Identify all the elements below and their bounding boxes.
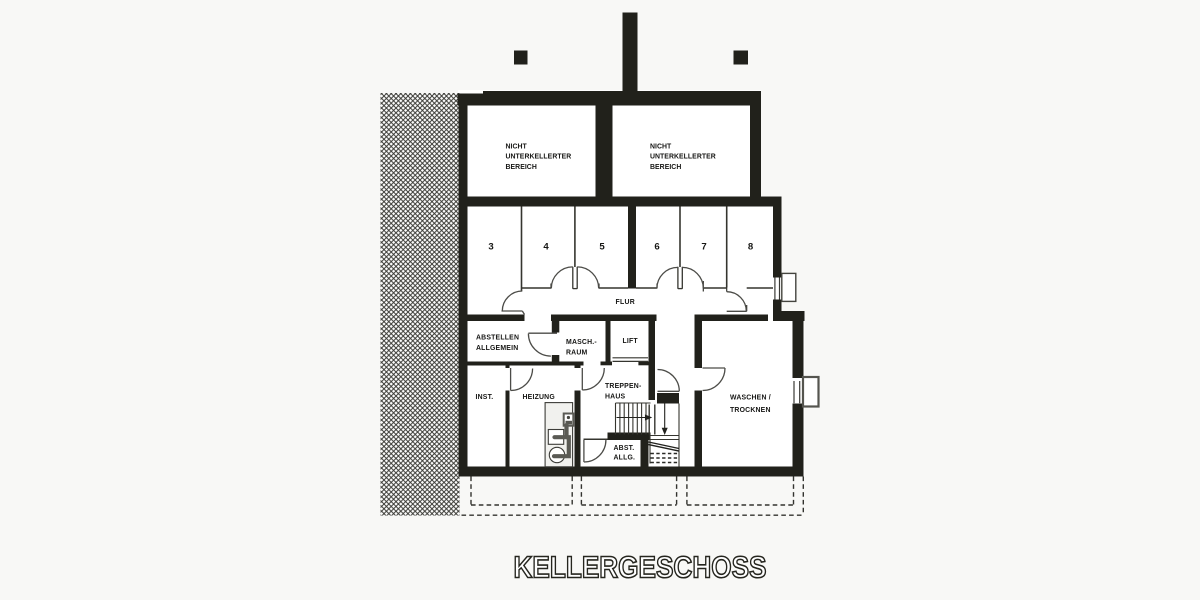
svg-text:LIFT: LIFT (623, 338, 639, 345)
svg-text:MASCH.-: MASCH.- (566, 339, 597, 346)
svg-text:7: 7 (701, 242, 706, 253)
svg-text:RAUM: RAUM (566, 349, 588, 356)
svg-text:NICHT: NICHT (650, 143, 672, 150)
svg-text:BEREICH: BEREICH (650, 164, 681, 171)
svg-text:ABSTELLEN: ABSTELLEN (476, 335, 519, 342)
svg-text:FLUR: FLUR (616, 299, 636, 306)
svg-text:BEREICH: BEREICH (506, 164, 537, 171)
svg-text:ALLGEMEIN: ALLGEMEIN (476, 345, 518, 352)
svg-text:8: 8 (748, 242, 754, 253)
svg-text:3: 3 (488, 242, 493, 253)
svg-text:HEIZUNG: HEIZUNG (523, 394, 555, 401)
svg-text:6: 6 (654, 242, 659, 253)
svg-text:5: 5 (599, 242, 605, 253)
svg-text:UNTERKELLERTER: UNTERKELLERTER (650, 154, 716, 161)
svg-text:4: 4 (543, 242, 549, 253)
svg-text:INST.: INST. (476, 394, 494, 401)
svg-text:KELLERGESCHOSS: KELLERGESCHOSS (514, 550, 767, 585)
svg-text:NICHT: NICHT (506, 143, 528, 150)
svg-text:TREPPEN-: TREPPEN- (605, 383, 642, 390)
svg-text:HAUS: HAUS (605, 394, 626, 401)
svg-text:ALLG.: ALLG. (614, 454, 636, 461)
svg-text:ABST.: ABST. (614, 445, 635, 452)
svg-text:UNTERKELLERTER: UNTERKELLERTER (506, 154, 572, 161)
svg-text:WASCHEN /: WASCHEN / (730, 395, 771, 402)
svg-text:TROCKNEN: TROCKNEN (730, 407, 771, 414)
